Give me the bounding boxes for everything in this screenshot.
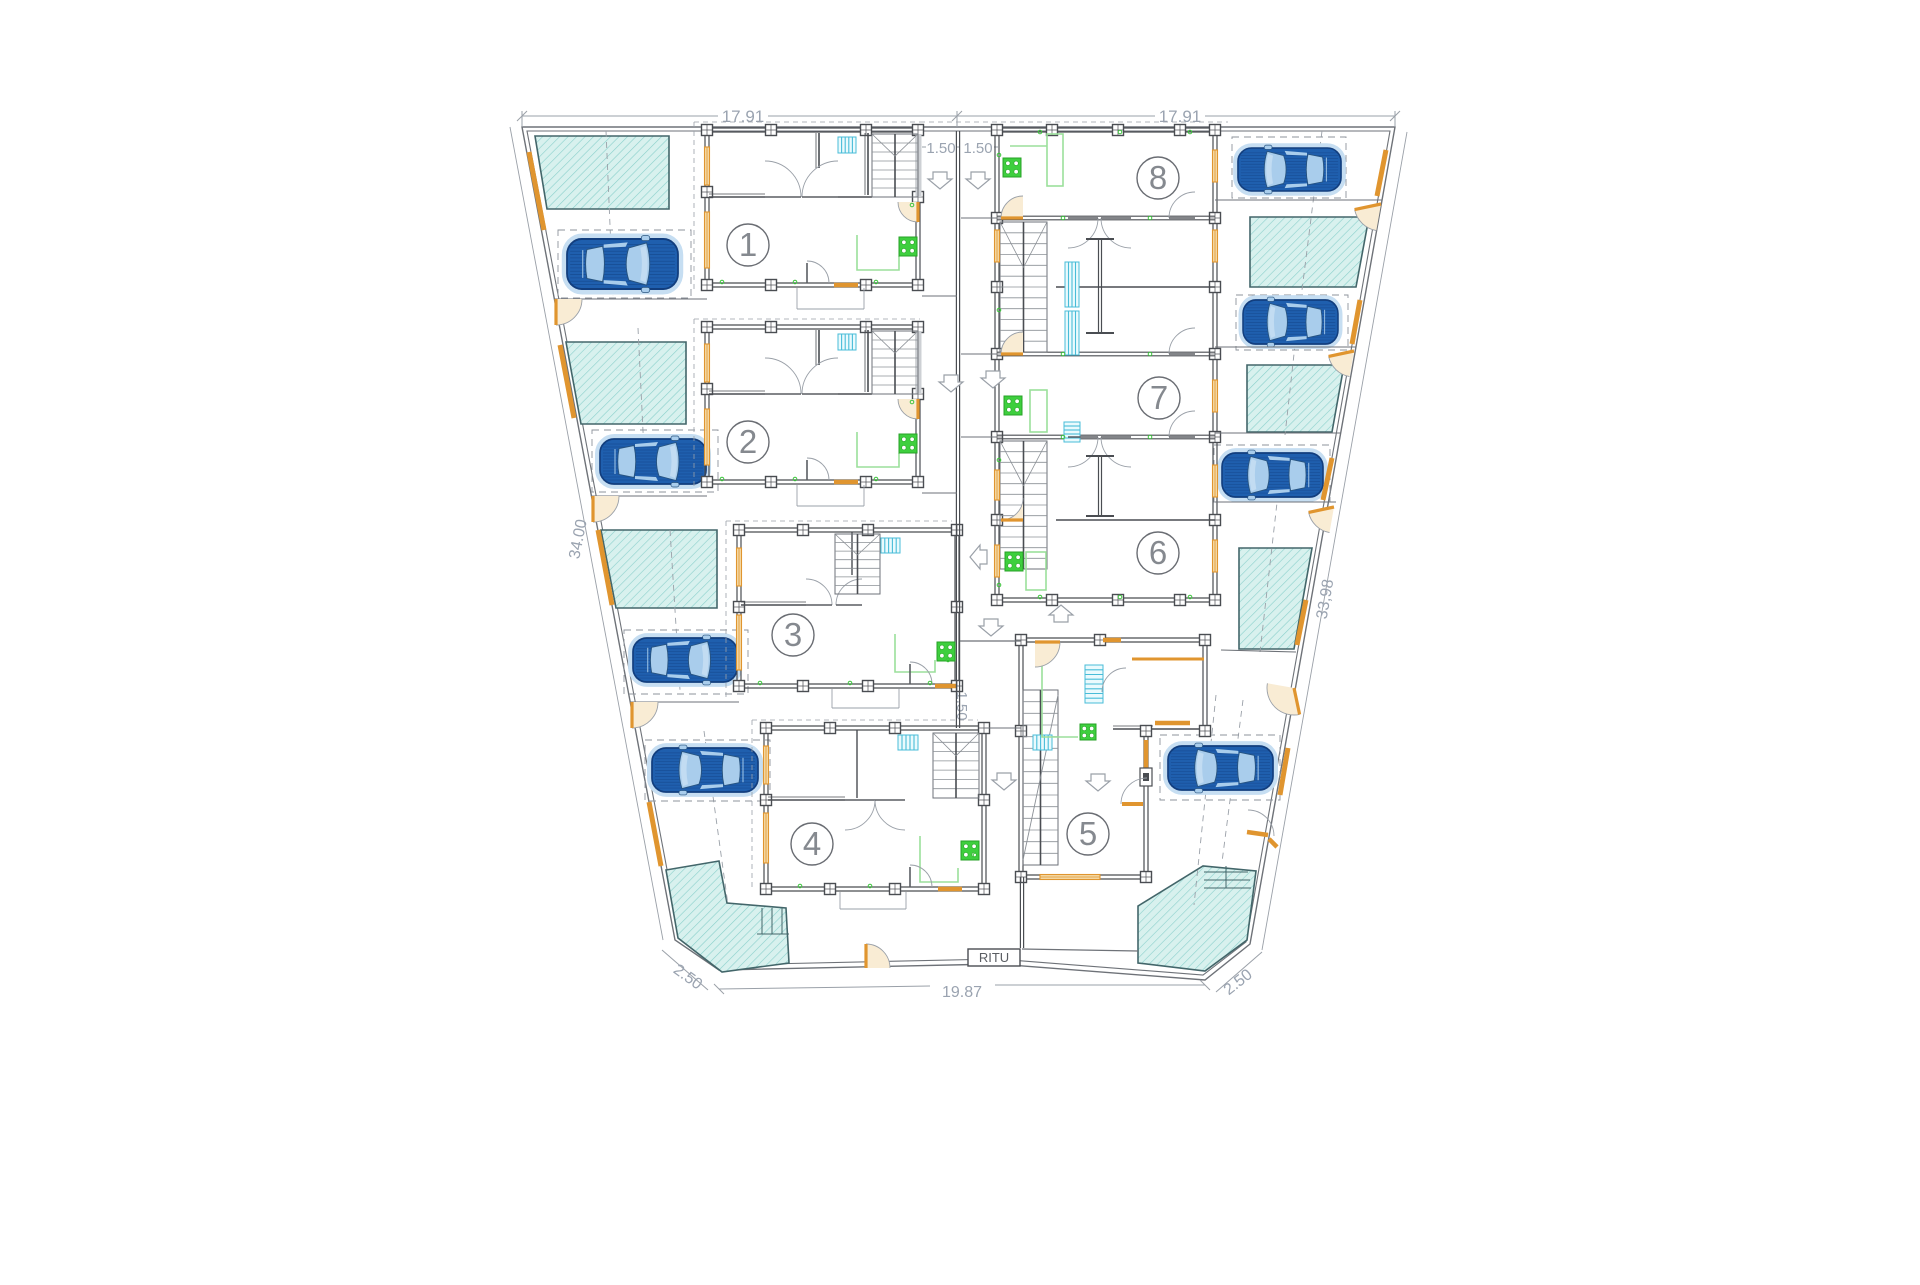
svg-text:8: 8	[1149, 159, 1167, 196]
svg-text:3: 3	[784, 616, 802, 653]
svg-text:RITU: RITU	[979, 950, 1009, 965]
svg-text:19.87: 19.87	[942, 984, 982, 1001]
svg-text:4: 4	[803, 825, 821, 862]
svg-text:1: 1	[739, 226, 757, 263]
svg-text:1.50: 1.50	[953, 691, 970, 720]
svg-text:2: 2	[739, 423, 757, 460]
svg-text:1.50: 1.50	[926, 140, 955, 157]
svg-text:7: 7	[1150, 379, 1168, 416]
svg-text:5: 5	[1079, 815, 1097, 852]
svg-text:1.50: 1.50	[963, 140, 992, 157]
svg-text:6: 6	[1149, 534, 1167, 571]
svg-text:17.91: 17.91	[1159, 107, 1202, 126]
svg-text:17.91: 17.91	[722, 107, 765, 126]
